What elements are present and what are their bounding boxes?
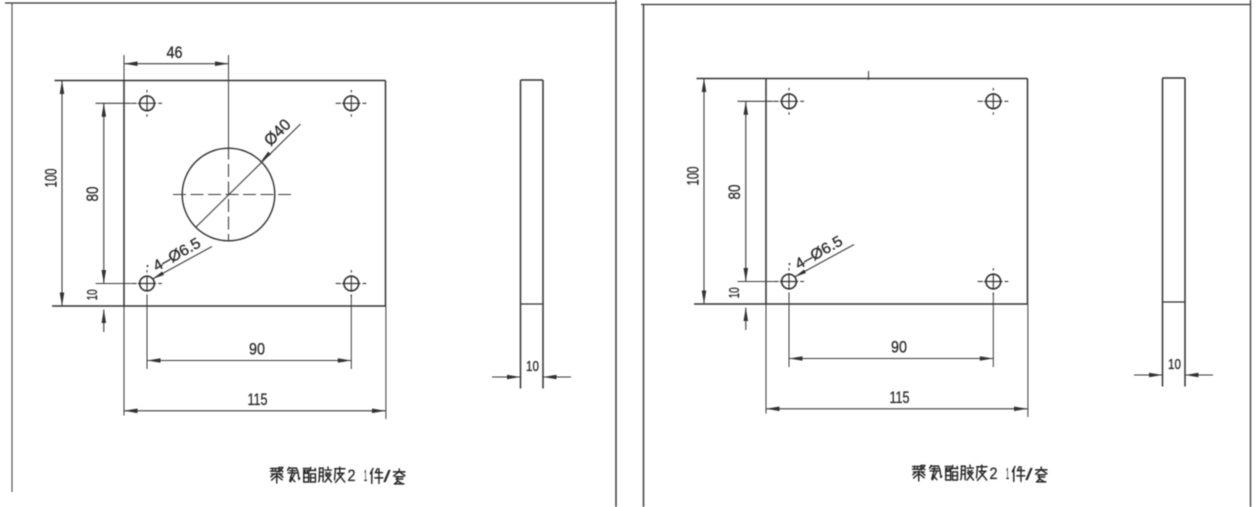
svg-text:90: 90 — [891, 338, 907, 357]
svg-text:2: 2 — [348, 466, 356, 485]
svg-text:10: 10 — [84, 289, 101, 300]
svg-text:46: 46 — [167, 43, 183, 62]
svg-text:90: 90 — [249, 340, 265, 359]
svg-text:10: 10 — [1168, 356, 1181, 373]
svg-text:80: 80 — [83, 187, 102, 202]
svg-text:10: 10 — [726, 287, 743, 298]
svg-text:80: 80 — [725, 185, 744, 200]
svg-text:115: 115 — [248, 390, 268, 409]
svg-text:115: 115 — [890, 388, 910, 407]
svg-text:10: 10 — [526, 358, 539, 375]
svg-text:/: / — [1026, 465, 1033, 484]
svg-text:1: 1 — [364, 468, 367, 485]
svg-text:1: 1 — [1006, 466, 1009, 483]
svg-text:2: 2 — [990, 464, 998, 483]
svg-text:100: 100 — [684, 167, 703, 186]
svg-text:100: 100 — [42, 169, 61, 188]
svg-text:/: / — [384, 467, 391, 486]
